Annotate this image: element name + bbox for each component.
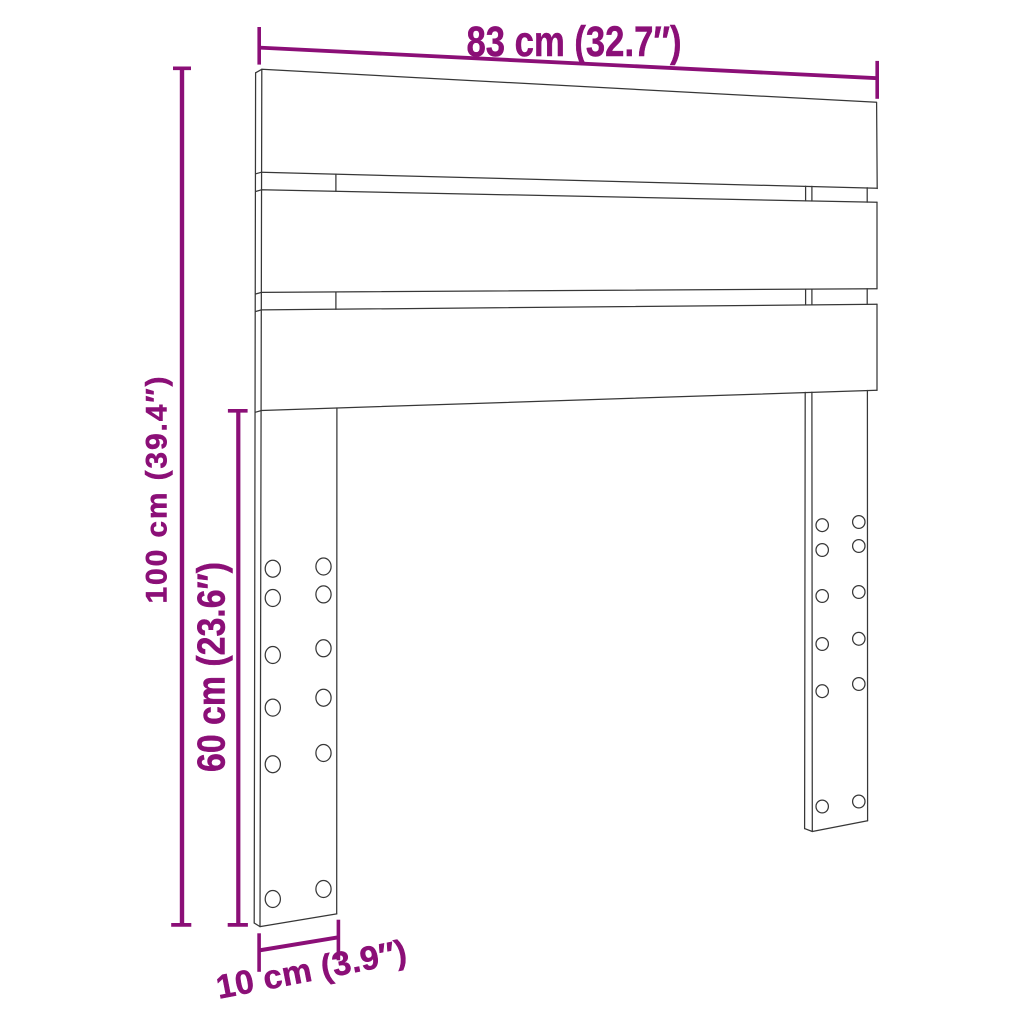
svg-text:100 cm (39.4″): 100 cm (39.4″)	[141, 377, 174, 604]
svg-text:60 cm (23.6″): 60 cm (23.6″)	[191, 562, 234, 772]
svg-text:83 cm (32.7″): 83 cm (32.7″)	[467, 18, 682, 66]
